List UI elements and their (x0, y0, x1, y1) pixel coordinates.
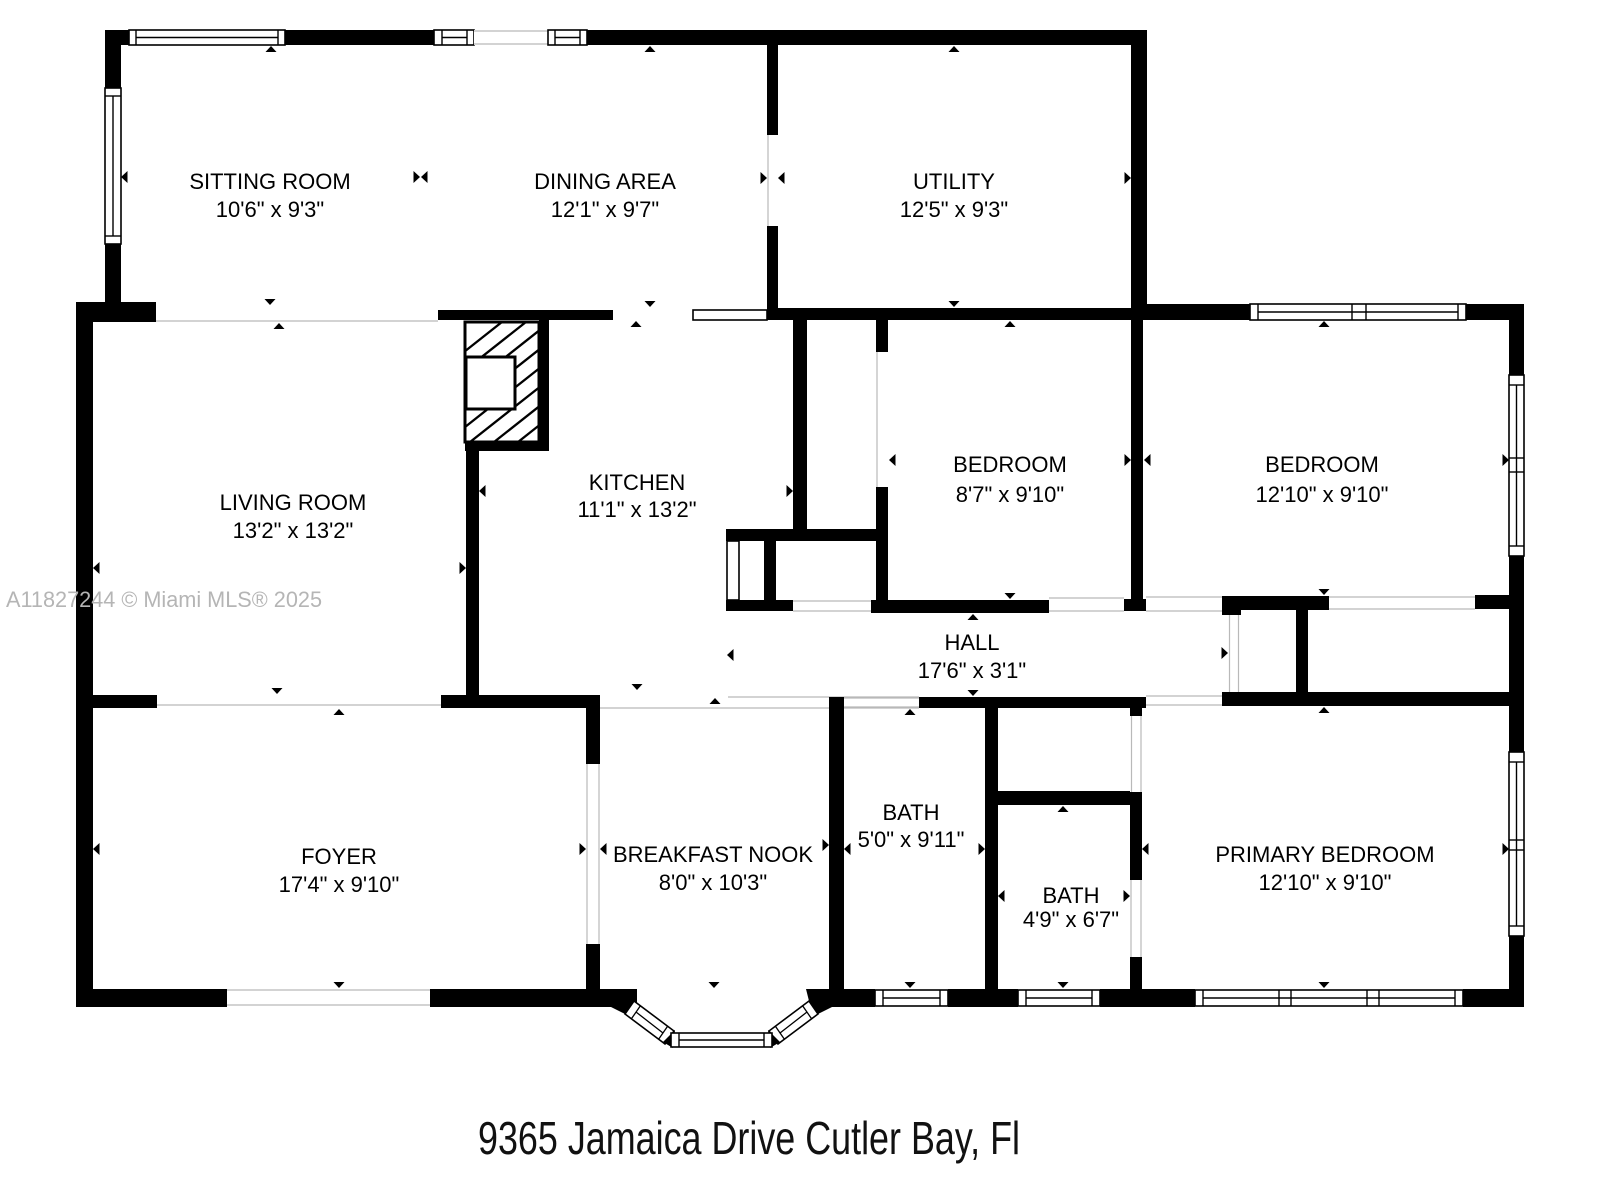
svg-text:13'2" x 13'2": 13'2" x 13'2" (233, 518, 354, 543)
svg-text:LIVING ROOM: LIVING ROOM (220, 490, 367, 515)
svg-text:BREAKFAST NOOK: BREAKFAST NOOK (613, 842, 813, 867)
svg-text:A11827244 © Miami MLS® 2025: A11827244 © Miami MLS® 2025 (6, 587, 322, 612)
svg-text:HALL: HALL (944, 630, 999, 655)
svg-text:11'1" x 13'2": 11'1" x 13'2" (577, 497, 696, 522)
svg-text:BEDROOM: BEDROOM (953, 452, 1067, 477)
svg-text:4'9" x 6'7": 4'9" x 6'7" (1023, 907, 1119, 932)
svg-text:UTILITY: UTILITY (913, 169, 995, 194)
svg-text:8'7" x 9'10": 8'7" x 9'10" (956, 482, 1064, 507)
svg-text:10'6" x 9'3": 10'6" x 9'3" (216, 197, 324, 222)
svg-text:9365 Jamaica Drive Cutler Bay,: 9365 Jamaica Drive Cutler Bay, Fl (478, 1112, 1020, 1164)
svg-text:17'4" x 9'10": 17'4" x 9'10" (279, 872, 400, 897)
svg-text:BATH: BATH (1042, 883, 1099, 908)
svg-text:12'1" x 9'7": 12'1" x 9'7" (551, 197, 659, 222)
svg-text:PRIMARY BEDROOM: PRIMARY BEDROOM (1215, 842, 1434, 867)
svg-text:8'0" x 10'3": 8'0" x 10'3" (659, 870, 767, 895)
svg-text:FOYER: FOYER (301, 844, 377, 869)
svg-text:BATH: BATH (882, 800, 939, 825)
svg-text:12'10" x 9'10": 12'10" x 9'10" (1259, 870, 1392, 895)
svg-text:BEDROOM: BEDROOM (1265, 452, 1379, 477)
svg-text:KITCHEN: KITCHEN (589, 470, 686, 495)
svg-text:12'10" x 9'10": 12'10" x 9'10" (1256, 482, 1389, 507)
svg-text:DINING AREA: DINING AREA (534, 169, 676, 194)
svg-text:12'5" x 9'3": 12'5" x 9'3" (900, 197, 1008, 222)
svg-text:5'0" x 9'11": 5'0" x 9'11" (858, 827, 965, 852)
svg-text:SITTING ROOM: SITTING ROOM (189, 169, 350, 194)
svg-text:17'6" x 3'1": 17'6" x 3'1" (918, 658, 1026, 683)
